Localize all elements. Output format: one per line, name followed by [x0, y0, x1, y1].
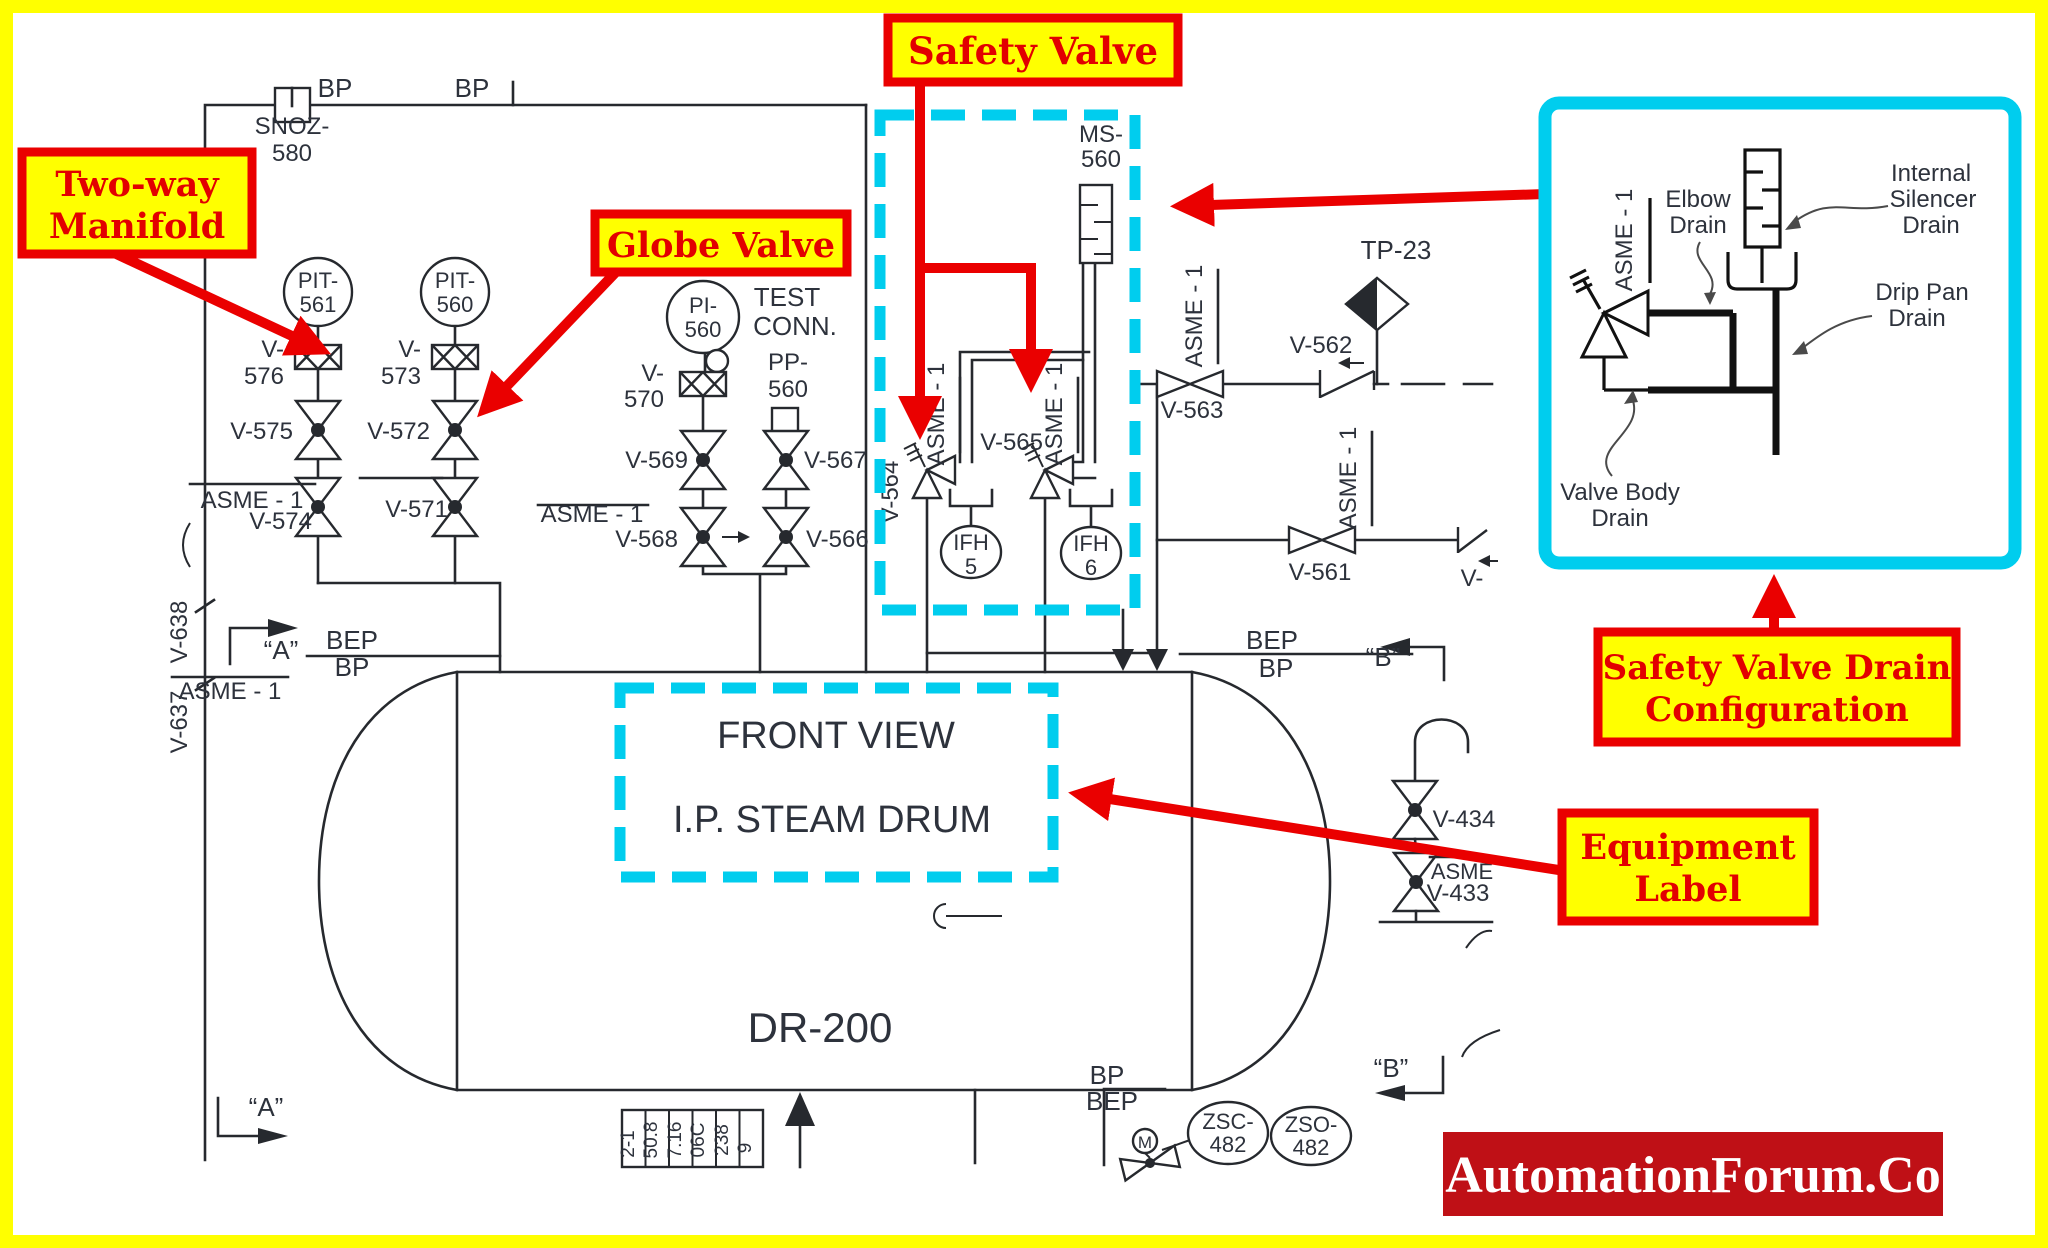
v571-label: V-571 — [385, 496, 448, 523]
front-view-label: FRONT VIEW — [717, 715, 955, 757]
drum-data-table: 2-1 50.8 7.16 06C 238 9 — [618, 1110, 763, 1167]
v576-label-2: 576 — [244, 363, 284, 390]
table-cell-6: 9 — [735, 1143, 756, 1154]
v566-label: V-566 — [806, 526, 869, 553]
pi560-label-2: 560 — [685, 317, 722, 342]
callout-two-way-manifold: Two-way Manifold — [22, 152, 252, 254]
v-check-label: V- — [1461, 565, 1484, 592]
pid-diagram: BP BP SNOZ- 580 PIT- 561 PIT- 560 V- 576… — [0, 0, 2048, 1248]
v565-label: V-565 — [980, 429, 1043, 456]
b-marker-top-label: “B” — [1366, 642, 1401, 672]
ip-steam-drum-label: I.P. STEAM DRUM — [673, 799, 991, 841]
v563-label: V-563 — [1161, 397, 1224, 424]
bp-label-left: BP — [335, 652, 370, 682]
logo: AutomationForum.Co — [1443, 1132, 1943, 1216]
inset-elbow-drain-line2: Drain — [1669, 212, 1726, 239]
callout-equipment-label: Equipment Label — [1562, 813, 1814, 921]
motor-label: M — [1138, 1133, 1152, 1152]
zso482-label-1: ZSO- — [1285, 1112, 1338, 1137]
drain-configuration-inset: ASME - 1 Elbow Drain Internal Silencer D… — [1545, 103, 2015, 563]
callout-safety-valve-line1: Safety Valve — [908, 29, 1158, 73]
v562-label: V-562 — [1290, 332, 1353, 359]
ms560-label-2: 560 — [1081, 146, 1121, 173]
table-cell-3: 7.16 — [665, 1122, 686, 1159]
v570-label-1: V- — [641, 360, 664, 387]
b-marker-bottom-label: “B” — [1374, 1053, 1409, 1083]
ms560-label-1: MS- — [1079, 121, 1123, 148]
callout-drain-config-line1: Safety Valve Drain — [1603, 648, 1952, 688]
pit561-label-2: 561 — [300, 292, 337, 317]
v574-label: V-574 — [249, 508, 312, 535]
asme-label-edge: ASME - 1 — [179, 678, 282, 705]
zso482-label-2: 482 — [1293, 1135, 1330, 1160]
callout-globe-valve-line1: Globe Valve — [607, 225, 835, 266]
inset-elbow-drain-line1: Elbow — [1665, 186, 1731, 213]
v434-label: V-434 — [1433, 806, 1496, 833]
callout-two-way-manifold-line2: Manifold — [49, 206, 225, 247]
pp560-label-1: PP- — [768, 349, 808, 376]
v569-label: V-569 — [625, 447, 688, 474]
callout-safety-valve-drain-configuration: Safety Valve Drain Configuration — [1598, 632, 1956, 742]
bp-label-right: BP — [1259, 653, 1294, 683]
bep-label-right: BEP — [1246, 625, 1298, 655]
test-conn-label-2: CONN. — [753, 311, 837, 341]
v570-label-2: 570 — [624, 386, 664, 413]
pit560-label-2: 560 — [437, 292, 474, 317]
asme-label-sv1: ASME - 1 — [923, 363, 950, 466]
v561-label: V-561 — [1289, 559, 1352, 586]
inset-valve-body-line2: Drain — [1591, 505, 1648, 532]
callout-two-way-manifold-line1: Two-way — [55, 164, 220, 205]
v638-label: V-638 — [166, 601, 193, 664]
logo-text: AutomationForum.Co — [1445, 1147, 1940, 1204]
inset-to-ms560-arrow — [1180, 194, 1545, 206]
v572-label: V-572 — [367, 418, 430, 445]
callout-drain-config-line2: Configuration — [1645, 690, 1909, 730]
dr200-label: DR-200 — [748, 1004, 893, 1051]
table-cell-5: 238 — [712, 1124, 733, 1156]
callout-equipment-label-line1: Equipment — [1580, 827, 1795, 868]
ifh5-label-2: 5 — [965, 554, 977, 579]
screenshot-canvas: BP BP SNOZ- 580 PIT- 561 PIT- 560 V- 576… — [0, 0, 2048, 1248]
inset-asme-label: ASME - 1 — [1611, 189, 1638, 292]
v567-label: V-567 — [804, 447, 867, 474]
globe-valve-arrow — [484, 272, 616, 410]
pp560-label-2: 560 — [768, 376, 808, 403]
bep-label-bottom: BEP — [1086, 1086, 1138, 1116]
v573-label-2: 573 — [381, 363, 421, 390]
asme-label-mid: ASME - 1 — [541, 501, 644, 528]
pit561-label-1: PIT- — [298, 268, 338, 293]
bep-label-left: BEP — [326, 625, 378, 655]
inset-valve-body-line1: Valve Body — [1560, 479, 1680, 506]
v575-label: V-575 — [230, 418, 293, 445]
asme-label-v561: ASME - 1 — [1335, 427, 1362, 530]
bottom-fittings — [785, 1089, 1351, 1180]
a-marker-bottom-label: “A” — [249, 1092, 284, 1122]
asme-label-sv2: ASME - 1 — [1041, 363, 1068, 466]
inset-internal-silencer-line2: Silencer — [1890, 186, 1977, 213]
bp-label-top-2: BP — [455, 73, 490, 103]
table-cell-1: 2-1 — [618, 1130, 639, 1157]
asme-label-v563: ASME - 1 — [1181, 265, 1208, 368]
v573-label-1: V- — [398, 336, 421, 363]
ifh6-label-2: 6 — [1085, 555, 1097, 580]
a-marker-top-label: “A” — [264, 635, 299, 665]
pi560-label-1: PI- — [689, 293, 717, 318]
table-cell-4: 06C — [688, 1123, 709, 1158]
ifh5-label-1: IFH — [953, 530, 988, 555]
callout-equipment-label-line2: Label — [1634, 869, 1741, 910]
v568-label: V-568 — [615, 526, 678, 553]
zsc482-label-2: 482 — [1210, 1132, 1247, 1157]
zsc482-label-1: ZSC- — [1202, 1109, 1253, 1134]
snoz-580-label-1: SNOZ- — [255, 113, 330, 140]
pit560-label-1: PIT- — [435, 268, 475, 293]
v576-label-1: V- — [261, 336, 284, 363]
snoz-580-label-2: 580 — [272, 140, 312, 167]
table-cell-2: 50.8 — [641, 1122, 662, 1159]
bp-label-top-1: BP — [318, 73, 353, 103]
v433-label: V-433 — [1427, 880, 1490, 907]
inset-internal-silencer-line1: Internal — [1891, 160, 1971, 187]
inset-drip-pan-line2: Drain — [1888, 305, 1945, 332]
callout-globe-valve: Globe Valve — [595, 214, 847, 272]
callout-safety-valve: Safety Valve — [888, 18, 1178, 82]
ifh6-label-1: IFH — [1073, 531, 1108, 556]
tp23-label: TP-23 — [1361, 235, 1432, 265]
inset-internal-silencer-line3: Drain — [1902, 212, 1959, 239]
inset-drip-pan-line1: Drip Pan — [1875, 279, 1968, 306]
test-conn-label-1: TEST — [754, 282, 821, 312]
